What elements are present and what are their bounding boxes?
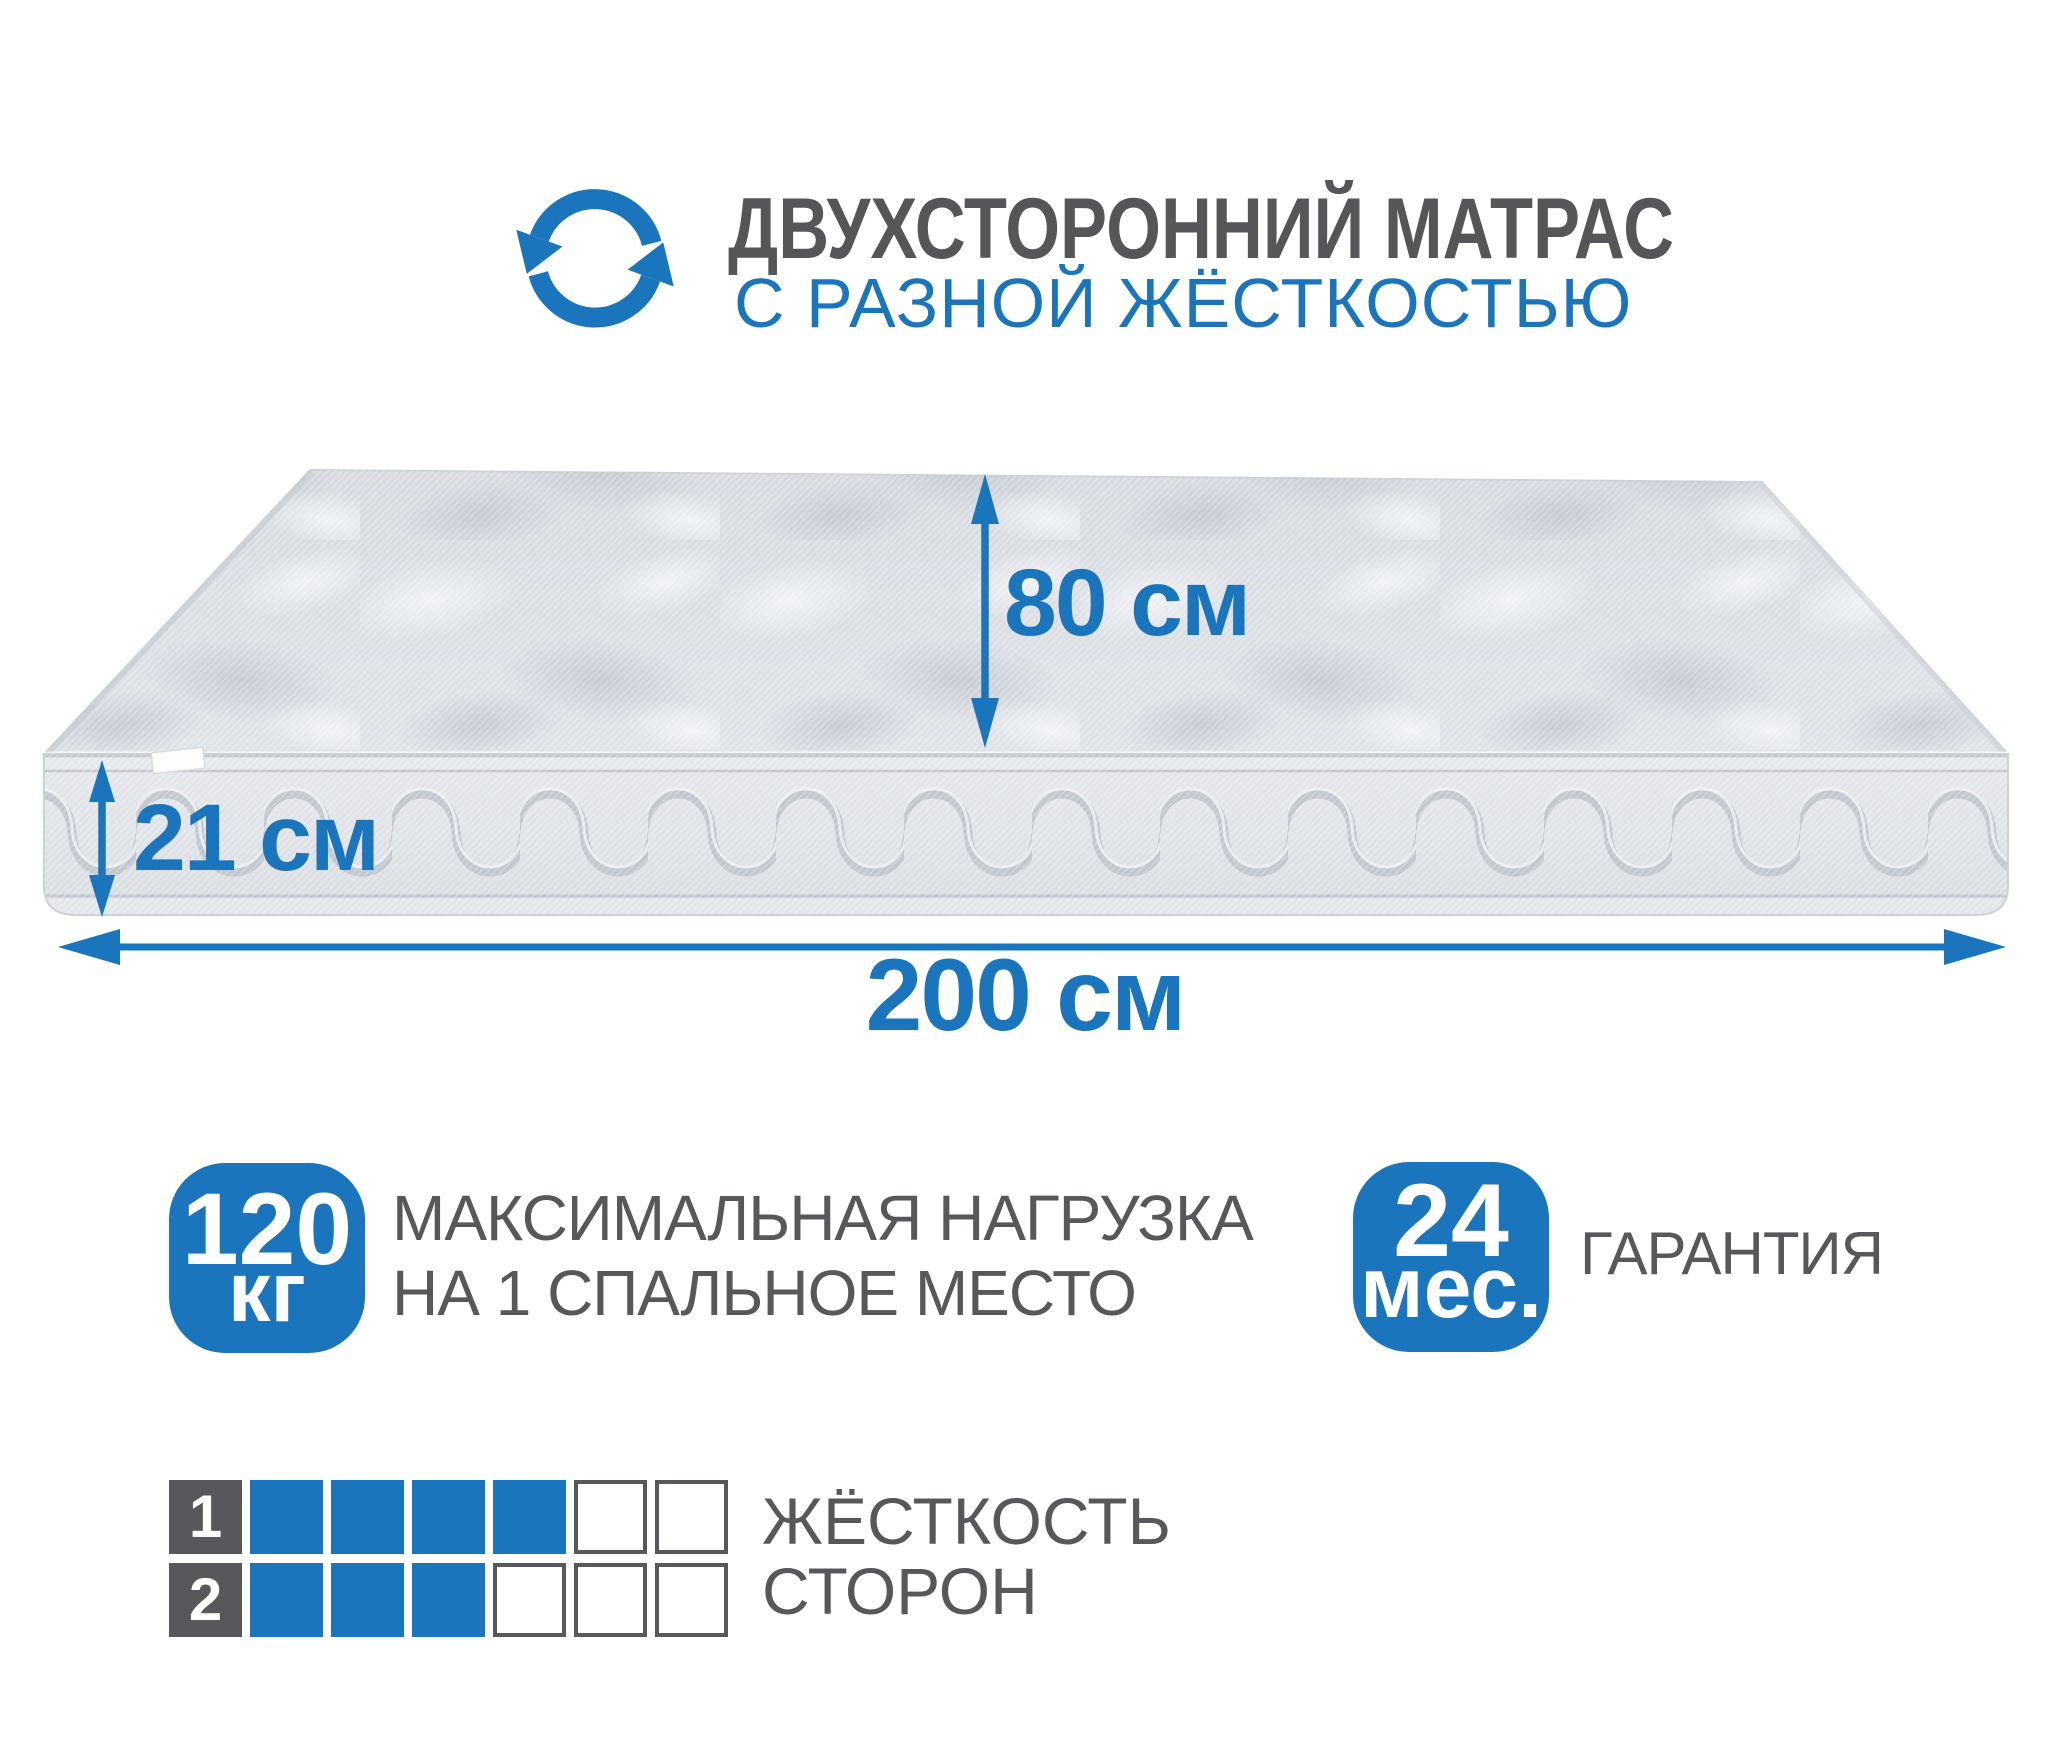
firmness-cell (331, 1563, 404, 1637)
max-load-label-line2: НА 1 СПАЛЬНОЕ МЕСТО (392, 1256, 1253, 1331)
firmness-cell (655, 1563, 728, 1637)
warranty-unit: мес. (1353, 1245, 1549, 1331)
page-subtitle: С РАЗНОЙ ЖЁСТКОСТЬЮ (734, 268, 1632, 338)
firmness-rows: 12 (169, 1480, 728, 1646)
firmness-cell (412, 1480, 485, 1554)
mattress-illustration: 80 см 21 см 200 см (0, 330, 2048, 1120)
firmness-cell (250, 1480, 323, 1554)
firmness-cell (331, 1480, 404, 1554)
max-load-label: МАКСИМАЛЬНАЯ НАГРУЗКА НА 1 СПАЛЬНОЕ МЕСТ… (392, 1181, 1253, 1331)
firmness-cell (655, 1480, 728, 1554)
firmness-cell (493, 1480, 566, 1554)
mattress-infographic: ДВУХСТОРОННИЙ МАТРАС С РАЗНОЙ ЖЁСТКОСТЬЮ (0, 0, 2048, 1757)
rotate-arrows-icon (511, 172, 679, 340)
page-title-text: ДВУХСТОРОННИЙ МАТРАС (728, 186, 1674, 272)
firmness-cell (412, 1563, 485, 1637)
firmness-cell (493, 1563, 566, 1637)
warranty-label: ГАРАНТИЯ (1580, 1224, 1883, 1284)
firmness-row: 2 (169, 1563, 728, 1637)
thickness-dimension-label: 21 см (133, 785, 378, 891)
firmness-cell (574, 1480, 647, 1554)
page-title: ДВУХСТОРОННИЙ МАТРАС (728, 186, 1882, 272)
firmness-title-line1: ЖЁСТКОСТЬ (762, 1488, 1171, 1554)
firmness-row-number: 2 (169, 1563, 242, 1637)
length-dimension-label: 200 см (866, 938, 1185, 1052)
warranty-badge: 24 мес. (1353, 1162, 1549, 1352)
max-load-badge: 120 кг (169, 1163, 365, 1353)
firmness-cell (250, 1563, 323, 1637)
firmness-row: 1 (169, 1480, 728, 1554)
firmness-title-line2: СТОРОН (762, 1558, 1038, 1624)
mattress-tag (151, 747, 205, 773)
max-load-label-line1: МАКСИМАЛЬНАЯ НАГРУЗКА (392, 1181, 1253, 1256)
max-load-unit: кг (169, 1250, 365, 1335)
firmness-cell (574, 1563, 647, 1637)
depth-dimension-label: 80 см (1004, 550, 1249, 656)
firmness-row-number: 1 (169, 1480, 242, 1554)
